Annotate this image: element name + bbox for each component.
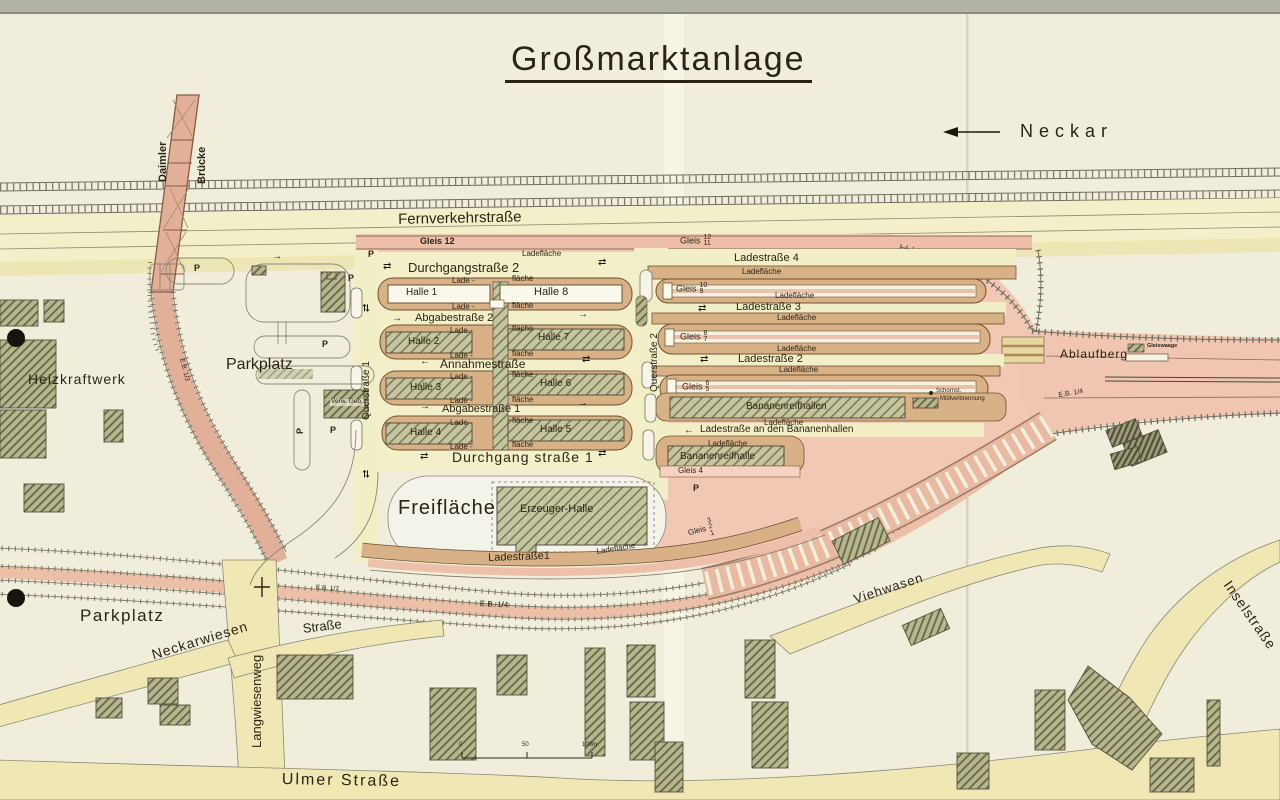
lade-label: Lade - bbox=[452, 277, 475, 285]
halle5-label: Halle 5 bbox=[540, 425, 571, 435]
gleis-12-11-label: Gleis1211 bbox=[680, 235, 711, 248]
traffic-arrow-icon: ⇄ bbox=[362, 470, 372, 478]
gleis4-label: Gleis 4 bbox=[678, 467, 703, 475]
ladestrasse4-road bbox=[648, 249, 1016, 266]
parking-p-marker: P bbox=[330, 426, 336, 435]
flaeche-label: fläche bbox=[512, 350, 533, 358]
ladestrasse3-label: Ladestraße 3 bbox=[736, 302, 801, 313]
scale-label-100m: 100m bbox=[582, 742, 597, 748]
traffic-arrow-icon: → bbox=[420, 402, 430, 412]
gleis-6-5-label: Gleis65 bbox=[682, 381, 709, 394]
bridge-label-bruecke: Brücke bbox=[197, 147, 208, 184]
ladeflaeche-label: Ladefläche bbox=[777, 345, 816, 353]
parking-p-marker: P bbox=[348, 274, 354, 283]
erzeuger-halle-label: Erzeuger-Halle bbox=[520, 504, 593, 515]
halle8-label: Halle 8 bbox=[534, 287, 568, 298]
ladeflaeche-label: Ladefläche bbox=[522, 250, 561, 258]
lade-label: Lade - bbox=[450, 397, 473, 405]
flaeche-label: fläche bbox=[512, 302, 533, 310]
lade-label: Lade - bbox=[452, 303, 475, 311]
ladeflaeche-label: Ladefläche bbox=[708, 440, 747, 448]
ladestrasse1-label: Ladestraße1 bbox=[488, 551, 550, 564]
halle3-label: Halle 3 bbox=[410, 383, 441, 393]
parkplatz-label-north: Parkplatz bbox=[226, 357, 293, 373]
parking-p-marker: P bbox=[296, 428, 305, 434]
flaeche-label: fläche bbox=[512, 275, 533, 283]
traffic-arrow-icon: ⇄ bbox=[420, 452, 428, 462]
traffic-arrow-icon: ← bbox=[684, 426, 694, 436]
gleis12-label: Gleis 12 bbox=[420, 237, 455, 246]
river-label: Neckar bbox=[1020, 122, 1113, 140]
durchgangstrasse2-label: Durchgangstraße 2 bbox=[408, 261, 519, 274]
ladeflaeche-label: Ladefläche bbox=[777, 314, 816, 322]
traffic-arrow-icon: → bbox=[272, 252, 282, 262]
traffic-arrow-icon: ⇄ bbox=[698, 304, 706, 314]
ladestrasse2-label: Ladestraße 2 bbox=[738, 354, 803, 365]
bananenreifhalle-label: Bananenreifhalle bbox=[680, 452, 755, 462]
abgabestrasse1-label: Abgabestraße 1 bbox=[442, 404, 520, 415]
bananenreifhallen-label: Bananenreifhallen bbox=[746, 402, 827, 412]
gleiswaage-building bbox=[1128, 344, 1144, 352]
parking-p-marker: P bbox=[693, 484, 699, 493]
site-plan-grossmarktanlage: Großmarktanlage Neckar Daimler Brücke Fe… bbox=[0, 0, 1280, 800]
gleis-10-9-label: Gleis109 bbox=[676, 283, 707, 296]
halle4-label: Halle 4 bbox=[410, 428, 441, 438]
ladestrasse4-label: Ladestraße 4 bbox=[734, 253, 799, 264]
traffic-arrow-icon: ⇄ bbox=[362, 304, 372, 312]
ladeflaeche-label: Ladefläche bbox=[775, 292, 814, 300]
halle1-building bbox=[388, 285, 490, 303]
halle2-label: Halle 2 bbox=[408, 337, 439, 347]
lade-label: Lade - bbox=[450, 419, 473, 427]
ulmer-strasse-label: Ulmer Straße bbox=[282, 772, 401, 790]
traffic-arrow-icon: ⇄ bbox=[582, 355, 590, 365]
map-dot bbox=[7, 589, 25, 607]
fernverkehrstrasse-label: Fernverkehrstraße bbox=[398, 209, 522, 227]
map-dot bbox=[7, 329, 25, 347]
bridge-label-daimler: Daimler bbox=[158, 142, 169, 182]
langwiesenweg-label: Langwiesenweg bbox=[250, 655, 263, 748]
page-title: Großmarktanlage bbox=[505, 42, 812, 83]
traffic-arrow-icon: ⇄ bbox=[383, 262, 391, 272]
traffic-arrow-icon: → bbox=[392, 314, 402, 324]
halle6-label: Halle 6 bbox=[540, 379, 571, 389]
flaeche-label: fläche bbox=[512, 417, 533, 425]
parkplatz-label-south: Parkplatz bbox=[80, 607, 164, 624]
ladeflaeche-label: Ladefläche bbox=[779, 366, 818, 374]
muellverbrennung-label: Müllverbrennung bbox=[940, 396, 985, 402]
heizkraftwerk-label: Heizkraftwerk bbox=[28, 372, 126, 386]
durchgangstrasse1-label: Durchgang straße 1 bbox=[452, 450, 594, 464]
flaeche-label: fläche bbox=[512, 396, 533, 404]
lade-label: Lade - bbox=[450, 352, 473, 360]
lade-label: Lade - bbox=[450, 443, 473, 451]
querstrasse1-label: Querstraße 1 bbox=[362, 361, 372, 420]
parking-p-marker: P bbox=[322, 340, 328, 349]
traffic-arrow-icon: ⇄ bbox=[598, 258, 606, 268]
scale-label-0: 0 bbox=[459, 742, 462, 748]
flaeche-label: fläche bbox=[512, 325, 533, 333]
traffic-arrow-icon: → bbox=[578, 399, 588, 409]
parking-p-marker: P bbox=[368, 250, 374, 259]
flaeche-label: fläche bbox=[512, 441, 533, 449]
gleis-8-7-label: Gleis87 bbox=[680, 331, 707, 344]
traffic-arrow-icon: ← bbox=[420, 357, 430, 367]
eb14-label-south: E.B. 1/4 bbox=[480, 600, 509, 609]
traffic-arrow-icon: ⇄ bbox=[700, 355, 708, 365]
bananen-street-label: Ladestraße an den Bananenhallen bbox=[700, 425, 853, 435]
halle7-label: Halle 7 bbox=[538, 333, 569, 343]
traffic-arrow-icon: ⇄ bbox=[598, 449, 606, 459]
verw-geb-label: Verw. Geb. bbox=[330, 399, 364, 406]
ablaufberg-label: Ablaufberg bbox=[1060, 348, 1128, 360]
scale-label-50: 50 bbox=[522, 742, 529, 748]
lade-label: Lade - bbox=[450, 327, 473, 335]
traffic-arrow-icon: → bbox=[578, 310, 588, 320]
schornstein-label: Schornst. bbox=[936, 388, 961, 394]
parking-p-marker: P bbox=[194, 264, 200, 273]
map-canvas bbox=[0, 0, 1280, 800]
abgabestrasse2-label: Abgabestraße 2 bbox=[415, 313, 493, 324]
flaeche-label: fläche bbox=[512, 371, 533, 379]
gleiswaage-label: Gleiswaage bbox=[1147, 344, 1177, 350]
querstrasse2-label: Querstraße 2 bbox=[650, 333, 660, 392]
lade-label: Lade - bbox=[450, 373, 473, 381]
freiflaeche-label: Freifläche bbox=[398, 498, 496, 518]
halle1-label: Halle 1 bbox=[406, 288, 437, 298]
ladeflaeche-label: Ladefläche bbox=[742, 268, 781, 276]
